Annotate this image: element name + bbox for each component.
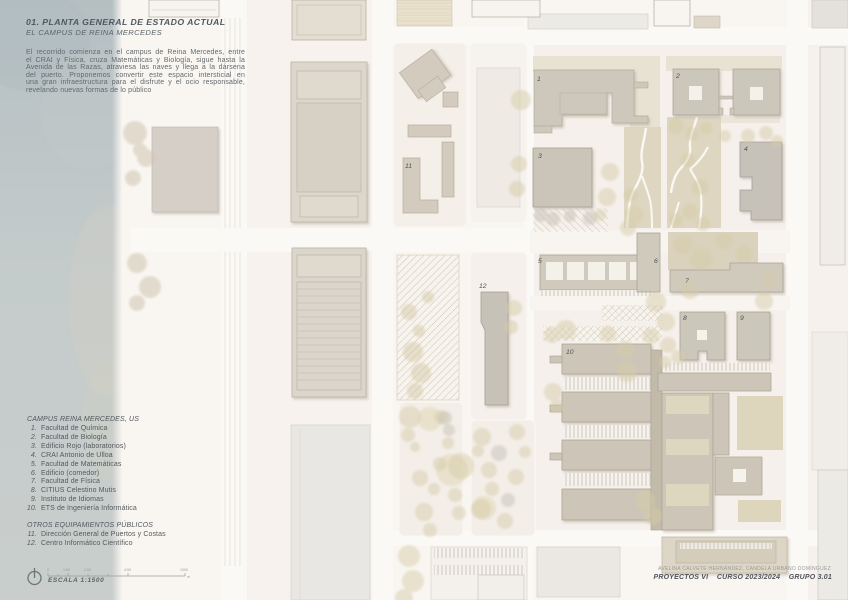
svg-text:2:50: 2:50 — [84, 568, 91, 572]
svg-text:10: 10 — [566, 349, 574, 356]
svg-text:12: 12 — [479, 283, 487, 290]
svg-text:9: 9 — [740, 315, 744, 322]
svg-text:1: 1 — [537, 76, 541, 83]
svg-text:2: 2 — [675, 73, 680, 80]
svg-text:11: 11 — [405, 163, 412, 170]
svg-text:5: 5 — [538, 258, 542, 265]
svg-text:4: 4 — [744, 146, 748, 153]
svg-text:m: m — [187, 575, 190, 579]
svg-text:4:50: 4:50 — [124, 568, 131, 572]
svg-text:1000: 1000 — [180, 568, 188, 572]
svg-text:6: 6 — [654, 258, 658, 265]
svg-text:1:50: 1:50 — [63, 568, 70, 572]
svg-text:0: 0 — [47, 568, 49, 572]
svg-text:3: 3 — [538, 153, 542, 160]
svg-text:8: 8 — [683, 315, 687, 322]
